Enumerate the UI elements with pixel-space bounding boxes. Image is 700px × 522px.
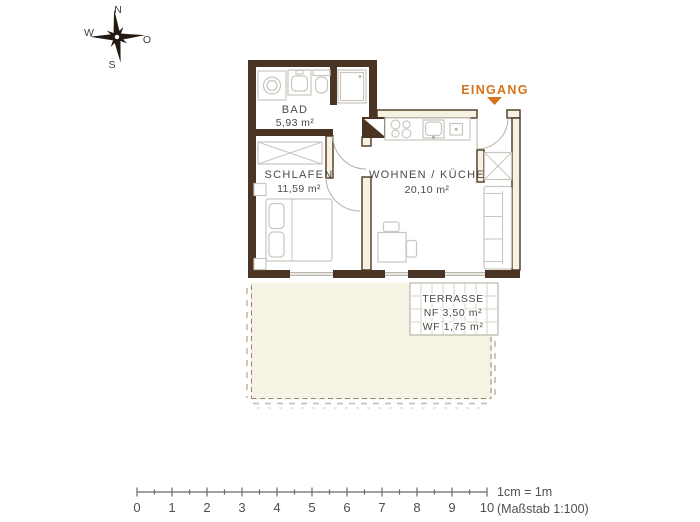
dining-table-icon: [378, 222, 417, 262]
compass-south-label: S: [108, 59, 115, 71]
bed-icon: [266, 199, 332, 261]
entrance-marker: EINGANG: [461, 83, 528, 105]
bathroom-sink-icon: [288, 70, 311, 95]
scale-tick-label: 2: [203, 500, 210, 515]
wall-top: [248, 60, 377, 67]
washing-machine-icon: [258, 71, 286, 100]
nightstand-icon: [254, 259, 266, 270]
room-schlafen: SCHLAFEN 11,59 m²: [254, 142, 334, 270]
wall-bedroom-right: [362, 177, 371, 270]
sofa-icon: [484, 187, 512, 270]
window-bedroom: [290, 273, 333, 275]
terrace-wf-area: WF 1,75 m²: [423, 321, 484, 333]
entrance-arrow-icon: [487, 97, 502, 105]
bad-room-area: 5,93 m²: [276, 117, 314, 129]
wall-bottom-2: [333, 270, 385, 278]
wall-left: [248, 60, 256, 278]
scale-tick-label: 1: [168, 500, 175, 515]
shaft-icon: [363, 118, 385, 137]
bad-room-label: BAD: [282, 104, 309, 116]
kitchen-sink-icon: [423, 120, 444, 139]
scale-tick-label: 4: [273, 500, 280, 515]
wall-right: [512, 118, 520, 270]
wall-lobby-east-post: [362, 137, 371, 146]
room-bad: BAD 5,93 m²: [258, 70, 366, 129]
nightstand-icon: [254, 184, 266, 196]
wardrobe-icon: [258, 142, 322, 164]
wall-bad-shower: [330, 67, 337, 105]
scale-legend-ratio: 1cm = 1m: [497, 485, 552, 499]
chair-icon: [384, 222, 400, 232]
wohnen-kueche-room-label: WOHNEN / KÜCHE: [369, 169, 485, 181]
wall-corridor: [377, 110, 477, 118]
wall-bottom-1: [248, 270, 290, 278]
window-terrace-door: [445, 273, 485, 275]
wall-step: [369, 60, 377, 118]
kitchen-appliance-icon: [450, 124, 463, 136]
wall-bottom-4: [485, 270, 520, 278]
schlafen-room-area: 11,59 m²: [277, 183, 321, 195]
wall-entry-post: [507, 110, 520, 118]
compass-rose: N W O S: [84, 4, 151, 71]
niche-wardrobe-icon: [485, 153, 512, 180]
compass-north-label: N: [114, 4, 122, 16]
scale-tick-label: 7: [378, 500, 385, 515]
scale-tick-label: 10: [480, 500, 494, 515]
schlafen-room-label: SCHLAFEN: [264, 169, 333, 181]
wall-bad-bottom: [248, 129, 333, 136]
scale-tick-label: 0: [133, 500, 140, 515]
scale-tick-label: 6: [343, 500, 350, 515]
scale-tick-label: 3: [238, 500, 245, 515]
entrance-door-arc: [477, 118, 508, 149]
windows: [290, 273, 485, 275]
chair-icon: [407, 241, 417, 258]
floor-plan-page: N W O S TERRASSE NF 3,50 m² WF: [0, 0, 700, 522]
scale-tick-label: 9: [448, 500, 455, 515]
wall-bottom-3: [408, 270, 445, 278]
terrace: TERRASSE NF 3,50 m² WF 1,75 m²: [410, 283, 498, 335]
terrace-label: TERRASSE: [422, 293, 483, 305]
compass-east-label: O: [143, 34, 151, 46]
bathroom-door-arc: [333, 136, 366, 169]
window-living-small: [385, 273, 408, 275]
scale-legend-massstab: (Maßstab 1:100): [497, 502, 589, 516]
toilet-icon: [313, 70, 330, 93]
scale-tick-label: 5: [308, 500, 315, 515]
scale-bar: 0 1 2 3 4 5 6 7 8 9 10 1cm = 1m (Maßstab…: [133, 485, 588, 516]
scale-tick-label: 8: [413, 500, 420, 515]
compass-west-label: W: [84, 27, 94, 39]
floor-plan-canvas: N W O S TERRASSE NF 3,50 m² WF: [0, 0, 700, 522]
eingang-label: EINGANG: [461, 83, 528, 97]
wohnen-kueche-room-area: 20,10 m²: [405, 184, 450, 196]
shower-icon: [338, 70, 366, 103]
terrace-nf-area: NF 3,50 m²: [424, 307, 483, 319]
room-wohnen-kueche: WOHNEN / KÜCHE 20,10 m²: [369, 118, 511, 269]
